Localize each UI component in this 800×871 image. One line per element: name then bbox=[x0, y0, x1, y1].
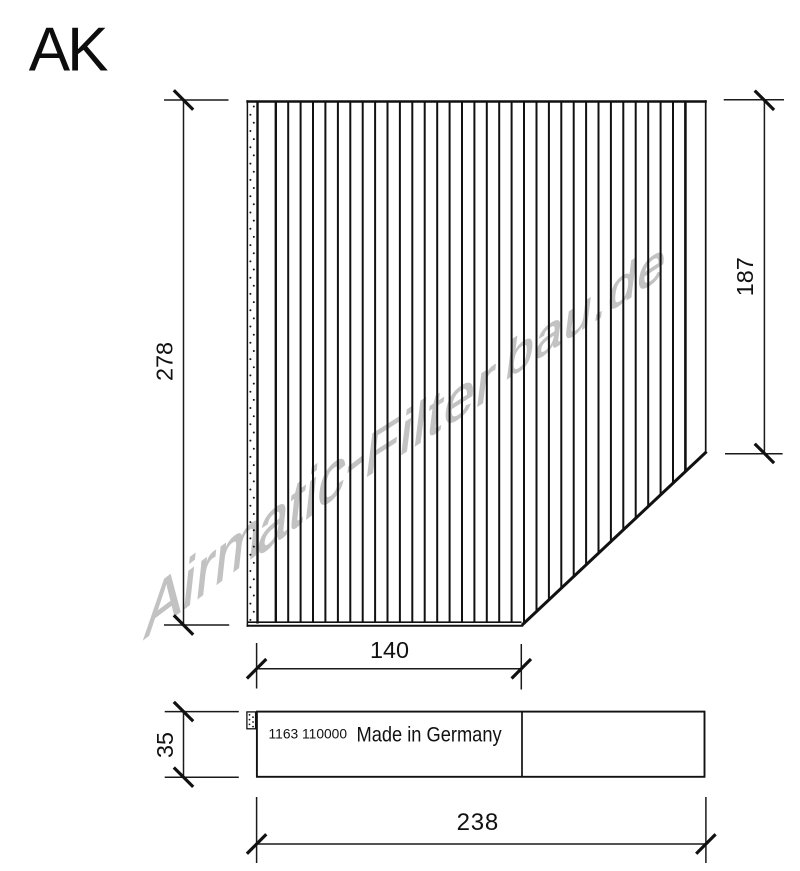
svg-text:AK: AK bbox=[29, 15, 108, 84]
svg-text:238: 238 bbox=[457, 809, 499, 836]
svg-text:278: 278 bbox=[151, 342, 177, 381]
svg-text:Made in Germany: Made in Germany bbox=[357, 723, 502, 746]
svg-text:1163 110000: 1163 110000 bbox=[269, 727, 348, 742]
svg-text:187: 187 bbox=[732, 257, 758, 296]
svg-text:atic-: atic- bbox=[254, 411, 370, 573]
svg-text:Filter: Filter bbox=[361, 340, 500, 493]
svg-text:35: 35 bbox=[152, 732, 178, 758]
svg-text:140: 140 bbox=[370, 637, 409, 663]
